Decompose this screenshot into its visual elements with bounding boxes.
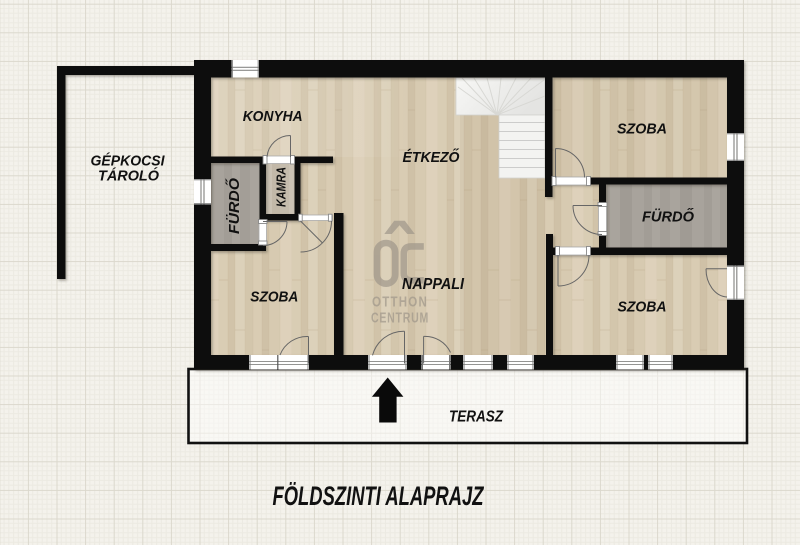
- svg-text:KONYHA: KONYHA: [243, 108, 303, 125]
- svg-text:GÉPKOCSI: GÉPKOCSI: [91, 153, 166, 170]
- svg-text:TERASZ: TERASZ: [449, 409, 503, 426]
- svg-text:SZOBA: SZOBA: [617, 121, 667, 138]
- svg-text:SZOBA: SZOBA: [618, 298, 667, 315]
- svg-text:FÖLDSZINTI ALAPRAJZ: FÖLDSZINTI ALAPRAJZ: [273, 481, 485, 511]
- svg-text:TÁROLÓ: TÁROLÓ: [98, 167, 160, 185]
- svg-text:ÉTKEZŐ: ÉTKEZŐ: [403, 148, 460, 166]
- svg-text:SZOBA: SZOBA: [250, 288, 298, 305]
- svg-text:FÜRDŐ: FÜRDŐ: [642, 207, 694, 225]
- svg-text:CENTRUM: CENTRUM: [371, 311, 429, 327]
- svg-text:FÜRDŐ: FÜRDŐ: [225, 178, 243, 234]
- svg-text:NAPPALI: NAPPALI: [402, 276, 465, 293]
- svg-text:OTTHON: OTTHON: [372, 295, 428, 311]
- svg-text:KAMRA: KAMRA: [274, 167, 288, 207]
